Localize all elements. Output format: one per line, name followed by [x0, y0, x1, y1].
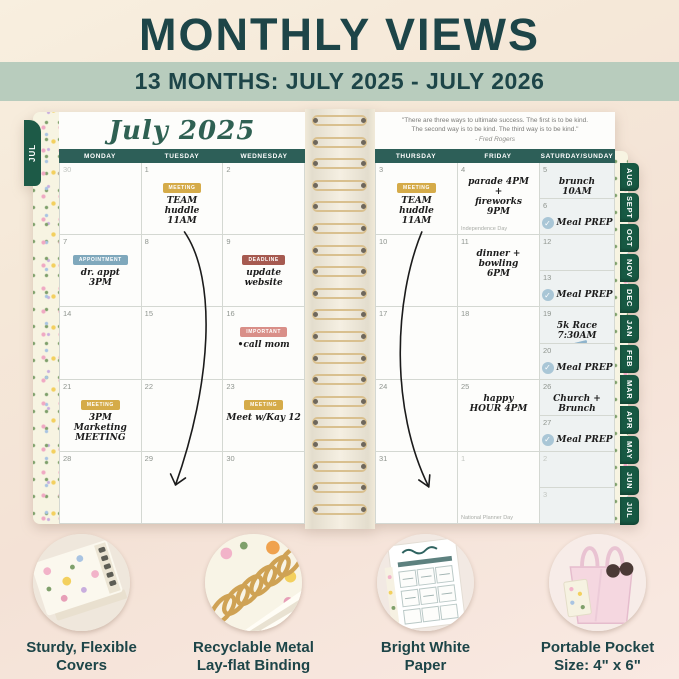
date-number: 14: [60, 307, 71, 318]
spiral-loop: [312, 137, 367, 148]
feature-label: Portable Pocket Size: 4" x 6": [541, 639, 654, 676]
calendar-cell: 8: [142, 235, 224, 307]
calendar-week-row: 1718195k Race 7:30AM20✓Meal PREP: [376, 307, 615, 379]
month-title: July 2025: [59, 112, 305, 149]
month-tab-nov[interactable]: NOV: [620, 254, 639, 282]
date-number: 2: [223, 163, 230, 174]
meal-prep-entry: ✓Meal PREP: [542, 362, 613, 374]
date-number: 22: [142, 380, 153, 391]
check-icon: ✓: [542, 434, 554, 446]
handwritten-note: dinner + bowling 6PM: [477, 249, 521, 279]
weekend-column: 1213✓Meal PREP: [540, 235, 615, 307]
date-number: 23: [223, 380, 234, 391]
calendar-cell: 1MEETINGTEAM huddle 11AM: [142, 163, 224, 235]
date-number: 16: [223, 307, 234, 318]
spiral-loop: [312, 223, 367, 234]
calendar-cell: 12: [540, 235, 615, 271]
date-number: 30: [223, 452, 234, 463]
spiral-loop: [312, 201, 367, 212]
calendar-cell: 14: [60, 307, 142, 379]
calendar-cell: 2: [223, 163, 305, 235]
page-title: MONTHLY VIEWS: [0, 0, 679, 61]
meal-prep-entry: ✓Meal PREP: [542, 289, 613, 301]
label-sticker: DEADLINE: [242, 255, 284, 265]
date-number: 2: [540, 452, 547, 463]
planner-spread: JUL July 2025 MONDAY TUESDAY WEDNESDAY 3…: [33, 109, 645, 529]
calendar-cell: 195k Race 7:30AM: [540, 307, 615, 343]
spiral-loop: [312, 288, 367, 299]
date-number: 13: [540, 271, 551, 282]
floral-cover-photo: [33, 534, 130, 631]
quote: "There are three ways to ultimate succes…: [375, 112, 615, 149]
calendar-week-row: 2425happy HOUR 4PM26Church + Brunch27✓Me…: [376, 380, 615, 452]
month-tab-column: AUGSEPTOCTNOVDECJANFEBMARAPRMAYJUNJUL: [615, 109, 645, 529]
handwritten-note: Meal PREP: [557, 363, 613, 373]
date-number: 20: [540, 344, 551, 355]
spiral-loop: [312, 461, 367, 472]
day-header-friday: FRIDAY: [457, 149, 539, 163]
date-number: 19: [540, 307, 551, 318]
month-tab-mar[interactable]: MAR: [620, 375, 639, 403]
month-tab-jan[interactable]: JAN: [620, 315, 639, 343]
date-number: 12: [540, 235, 551, 246]
date-number: 24: [376, 380, 387, 391]
handwritten-note: parade 4PM + fireworks 9PM: [468, 177, 529, 217]
spiral-loop: [312, 504, 367, 515]
holiday-label: National Planner Day: [461, 515, 513, 521]
left-grid-wrap: 301MEETINGTEAM huddle 11AM27APPOINTMENTd…: [59, 163, 305, 524]
feature-label: Bright White Paper: [381, 639, 470, 676]
tote-bag-photo: [549, 534, 646, 631]
spiral-loop: [312, 353, 367, 364]
month-tab-apr[interactable]: APR: [620, 406, 639, 434]
feature-binding: Recyclable Metal Lay-flat Binding: [178, 534, 330, 676]
calendar-cell: 1National Planner Day: [458, 452, 540, 524]
check-icon: ✓: [542, 362, 554, 374]
current-month-tab[interactable]: JUL: [24, 120, 41, 186]
calendar-cell: 6✓Meal PREP: [540, 199, 615, 235]
month-tab-jun[interactable]: JUN: [620, 466, 639, 494]
handwritten-note: •call mom: [238, 340, 290, 350]
month-tab-feb[interactable]: FEB: [620, 345, 639, 373]
handwritten-note: 3PM Marketing MEETING: [74, 413, 127, 443]
left-calendar-grid: 301MEETINGTEAM huddle 11AM27APPOINTMENTd…: [60, 163, 305, 524]
holiday-label: Independence Day: [461, 226, 507, 232]
feature-label: Recyclable Metal Lay-flat Binding: [193, 639, 314, 676]
spiral-loop: [312, 331, 367, 342]
day-header-weekend: SATURDAY/SUNDAY: [539, 149, 615, 163]
handwritten-note: Meet w/Kay 12: [227, 413, 301, 423]
quote-line1: "There are three ways to ultimate succes…: [383, 116, 607, 125]
handwritten-note: TEAM huddle 11AM: [165, 196, 200, 226]
day-header-wednesday: WEDNESDAY: [223, 149, 305, 163]
handwritten-note: dr. appt 3PM: [81, 268, 120, 288]
left-page: July 2025 MONDAY TUESDAY WEDNESDAY 301ME…: [59, 112, 305, 524]
spiral-binding-illustration: [205, 534, 302, 631]
date-number: 6: [540, 199, 547, 210]
day-header-thursday: THURSDAY: [375, 149, 457, 163]
spiral-loop: [312, 396, 367, 407]
spiral-binding: [305, 109, 375, 529]
date-number: 27: [540, 416, 551, 427]
calendar-cell: 2: [540, 452, 615, 488]
calendar-cell: 16IMPORTANT•call mom: [223, 307, 305, 379]
label-sticker: MEETING: [163, 183, 202, 193]
date-number: 18: [458, 307, 469, 318]
calendar-cell: 24: [376, 380, 458, 452]
spiral-loop: [312, 158, 367, 169]
date-number: 9: [223, 235, 230, 246]
month-tab-may[interactable]: MAY: [620, 436, 639, 464]
handwritten-note: Meal PREP: [557, 290, 613, 300]
calendar-cell: 9DEADLINEupdate website: [223, 235, 305, 307]
white-paper-photo: [377, 534, 474, 631]
calendar-cell: 30: [223, 452, 305, 524]
handwritten-note: TEAM huddle 11AM: [399, 196, 434, 226]
date-number: 5: [540, 163, 547, 174]
spiral-loop: [312, 417, 367, 428]
quote-line2: The second way is to be kind. The third …: [383, 125, 607, 134]
month-tab-aug[interactable]: AUG: [620, 163, 639, 191]
planner-cover-edge: JUL: [33, 112, 59, 524]
right-day-header: THURSDAY FRIDAY SATURDAY/SUNDAY: [375, 149, 615, 163]
date-number: 3: [540, 488, 547, 499]
date-number: 17: [376, 307, 387, 318]
date-number: 29: [142, 452, 153, 463]
calendar-cell: 7APPOINTMENTdr. appt 3PM: [60, 235, 142, 307]
date-number: 15: [142, 307, 153, 318]
check-icon: ✓: [542, 217, 554, 229]
calendar-cell: 28: [60, 452, 142, 524]
calendar-cell: 27✓Meal PREP: [540, 416, 615, 452]
calendar-cell: 13✓Meal PREP: [540, 271, 615, 307]
month-tab-sept[interactable]: SEPT: [620, 193, 639, 221]
date-number: 3: [376, 163, 383, 174]
weekend-column: 195k Race 7:30AM20✓Meal PREP: [540, 307, 615, 379]
handwritten-note: update website: [245, 268, 283, 288]
spiral-binding-photo: [205, 534, 302, 631]
right-calendar-grid: 3MEETINGTEAM huddle 11AM4parade 4PM + fi…: [376, 163, 615, 524]
calendar-cell: 21MEETING3PM Marketing MEETING: [60, 380, 142, 452]
handwritten-note: Meal PREP: [557, 218, 613, 228]
month-tab-jul[interactable]: JUL: [620, 497, 639, 525]
date-number: 25: [458, 380, 469, 391]
check-icon: ✓: [542, 289, 554, 301]
left-day-header: MONDAY TUESDAY WEDNESDAY: [59, 149, 305, 163]
calendar-cell: 4parade 4PM + fireworks 9PMIndependence …: [458, 163, 540, 235]
calendar-cell: 20✓Meal PREP: [540, 344, 615, 380]
calendar-cell: 23MEETINGMeet w/Kay 12: [223, 380, 305, 452]
tote-bag-illustration: [549, 534, 646, 631]
calendar-week-row: 3MEETINGTEAM huddle 11AM4parade 4PM + fi…: [376, 163, 615, 235]
date-number: 30: [60, 163, 71, 174]
label-sticker: MEETING: [397, 183, 436, 193]
feature-row: Sturdy, Flexible Covers: [0, 534, 679, 676]
handwritten-note: Church + Brunch: [553, 394, 601, 414]
calendar-cell: 3: [540, 488, 615, 524]
date-number: 26: [540, 380, 551, 391]
spiral-loop: [312, 482, 367, 493]
meal-prep-entry: ✓Meal PREP: [542, 217, 613, 229]
calendar-week-row: 1011dinner + bowling 6PM1213✓Meal PREP: [376, 235, 615, 307]
calendar-cell: 10: [376, 235, 458, 307]
weekend-column: 26Church + Brunch27✓Meal PREP: [540, 380, 615, 452]
spiral-loop: [312, 309, 367, 320]
handwritten-note: Meal PREP: [557, 435, 613, 445]
calendar-cell: 3MEETINGTEAM huddle 11AM: [376, 163, 458, 235]
calendar-cell: 30: [60, 163, 142, 235]
label-sticker: MEETING: [81, 400, 120, 410]
spiral-loop: [312, 374, 367, 385]
day-header-monday: MONDAY: [59, 149, 141, 163]
calendar-cell: 5brunch 10AM: [540, 163, 615, 199]
date-number: 8: [142, 235, 149, 246]
product-image-canvas: MONTHLY VIEWS 13 MONTHS: JULY 2025 - JUL…: [0, 0, 679, 679]
weekend-column: 23: [540, 452, 615, 524]
floral-cover-illustration: [33, 534, 130, 631]
white-paper-illustration: [377, 534, 474, 631]
spiral-loop: [312, 439, 367, 450]
date-number: 10: [376, 235, 387, 246]
calendar-cell: 31: [376, 452, 458, 524]
subtitle-banner: 13 MONTHS: JULY 2025 - JULY 2026: [0, 62, 679, 101]
calendar-cell: 22: [142, 380, 224, 452]
date-number: 28: [60, 452, 71, 463]
label-sticker: IMPORTANT: [240, 327, 287, 337]
date-number: 1: [458, 452, 465, 463]
feature-paper: Bright White Paper: [350, 534, 502, 676]
spiral-loop: [312, 115, 367, 126]
weekend-column: 5brunch 10AM6✓Meal PREP: [540, 163, 615, 235]
calendar-cell: 15: [142, 307, 224, 379]
month-tab-dec[interactable]: DEC: [620, 284, 639, 312]
calendar-cell: 17: [376, 307, 458, 379]
calendar-cell: 25happy HOUR 4PM: [458, 380, 540, 452]
label-sticker: APPOINTMENT: [73, 255, 128, 265]
month-tabs: AUGSEPTOCTNOVDECJANFEBMARAPRMAYJUNJUL: [620, 163, 639, 525]
calendar-cell: 29: [142, 452, 224, 524]
handwritten-note: brunch 10AM: [559, 177, 595, 197]
calendar-cell: 26Church + Brunch: [540, 380, 615, 416]
date-number: 11: [458, 235, 469, 246]
calendar-cell: 18: [458, 307, 540, 379]
calendar-cell: 11dinner + bowling 6PM: [458, 235, 540, 307]
handwritten-note: happy HOUR 4PM: [470, 394, 528, 414]
date-number: 4: [458, 163, 465, 174]
feature-pocket-size: Portable Pocket Size: 4" x 6": [522, 534, 674, 676]
date-number: 7: [60, 235, 67, 246]
meal-prep-entry: ✓Meal PREP: [542, 434, 613, 446]
right-grid-wrap: 3MEETINGTEAM huddle 11AM4parade 4PM + fi…: [375, 163, 615, 524]
right-page: "There are three ways to ultimate succes…: [375, 112, 615, 524]
handwritten-note: 5k Race 7:30AM: [557, 321, 597, 341]
label-sticker: MEETING: [244, 400, 283, 410]
date-number: 21: [60, 380, 71, 391]
date-number: 31: [376, 452, 387, 463]
feature-covers: Sturdy, Flexible Covers: [6, 534, 158, 676]
day-header-tuesday: TUESDAY: [141, 149, 223, 163]
feature-label: Sturdy, Flexible Covers: [26, 639, 137, 676]
month-tab-oct[interactable]: OCT: [620, 224, 639, 252]
spiral-loop: [312, 180, 367, 191]
spiral-loop: [312, 266, 367, 277]
calendar-week-row: 311National Planner Day23: [376, 452, 615, 524]
spiral-loop: [312, 245, 367, 256]
quote-attribution: - Fred Rogers: [383, 135, 607, 144]
date-number: 1: [142, 163, 149, 174]
